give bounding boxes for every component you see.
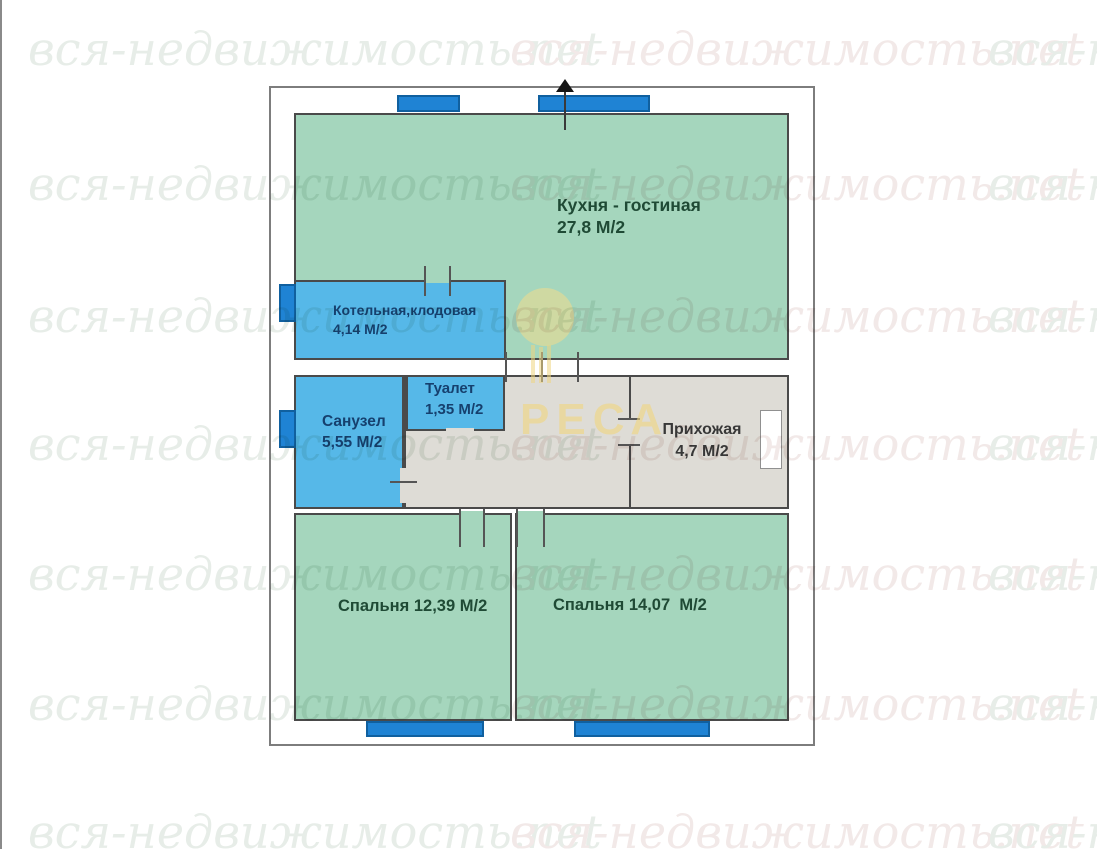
door-gap-toilet xyxy=(446,428,474,433)
room-name: Котельная,клодовая xyxy=(333,302,476,318)
watermark-text: вся-недвижимость.net xyxy=(510,805,1084,859)
door-mark xyxy=(390,481,417,483)
door-mark xyxy=(543,509,545,547)
door-mark xyxy=(618,418,640,420)
door-gap-hallway xyxy=(628,420,634,444)
window-top-left xyxy=(397,95,460,112)
window-left-upper xyxy=(279,284,296,322)
room-area: 4,14 М/2 xyxy=(333,321,387,337)
label-kitchen: Кухня - гостиная27,8 М/2 xyxy=(557,194,701,238)
room-name: Спальня 12,39 М/2 xyxy=(338,597,487,615)
room-name: Туалет xyxy=(425,380,475,397)
watermark-text: вся-недвижимость.net xyxy=(28,22,602,76)
label-hallway: Прихожая4,7 М/2 xyxy=(640,419,764,463)
door-mark xyxy=(505,352,507,382)
window-bottom-right xyxy=(574,721,710,737)
door-mark xyxy=(618,444,640,446)
label-bedroom-2: Спальня 14,07 М/2 xyxy=(553,594,707,616)
door-mark xyxy=(449,266,451,296)
room-name: Прихожая xyxy=(663,421,742,438)
room-bedroom-2 xyxy=(515,513,789,721)
room-bedroom-1 xyxy=(294,513,512,721)
watermark-text: вся-недвижимость.net xyxy=(988,417,1097,471)
window-left-lower xyxy=(279,410,296,448)
door-mark xyxy=(483,509,485,547)
room-name: Спальня 14,07 М/2 xyxy=(553,596,707,614)
room-area: 5,55 М/2 xyxy=(322,434,382,451)
door-gap-bathroom xyxy=(400,468,406,503)
room-name: Санузел xyxy=(322,413,386,430)
watermark-text: вся-недвижимость.net xyxy=(988,805,1097,859)
window-bottom-left xyxy=(366,721,484,737)
arrow-up-icon xyxy=(556,79,574,92)
door-mark xyxy=(577,352,579,382)
label-boiler: Котельная,клодовая4,14 М/2 xyxy=(333,301,476,339)
watermark-text: вся-недвижимость.net xyxy=(988,289,1097,343)
window-top-center xyxy=(538,95,650,112)
label-bathroom: Санузел5,55 М/2 xyxy=(322,411,386,453)
watermark-text: вся-недвижимость.net xyxy=(510,22,1084,76)
door-mark xyxy=(516,509,518,547)
label-bedroom-1: Спальня 12,39 М/2 xyxy=(338,595,487,617)
door-mark xyxy=(459,509,461,547)
watermark-text: вся-недвижимость.net xyxy=(988,22,1097,76)
room-area: 27,8 М/2 xyxy=(557,217,625,237)
watermark-text: вся-недвижимость.net xyxy=(28,805,602,859)
page-left-edge-line xyxy=(0,0,2,849)
door-gap-bedroom-1 xyxy=(459,511,483,516)
watermark-text: вся-недвижимость.net xyxy=(988,677,1097,731)
door-mark xyxy=(541,352,543,382)
room-area: 4,7 М/2 xyxy=(675,443,728,460)
door-mark xyxy=(424,266,426,296)
door-gap-boiler xyxy=(424,278,449,283)
watermark-text: вся-недвижимость.net xyxy=(988,547,1097,601)
room-area: 1,35 М/2 xyxy=(425,401,483,418)
label-toilet: Туалет1,35 М/2 xyxy=(425,378,483,420)
arrow-line xyxy=(564,92,566,130)
floor-plan-page: { "watermark": { "text": "вся-недвижимос… xyxy=(0,0,1097,849)
room-name: Кухня - гостиная xyxy=(557,195,701,215)
watermark-text: вся-недвижимость.net xyxy=(988,157,1097,211)
door-gap-bedroom-2 xyxy=(517,511,543,516)
